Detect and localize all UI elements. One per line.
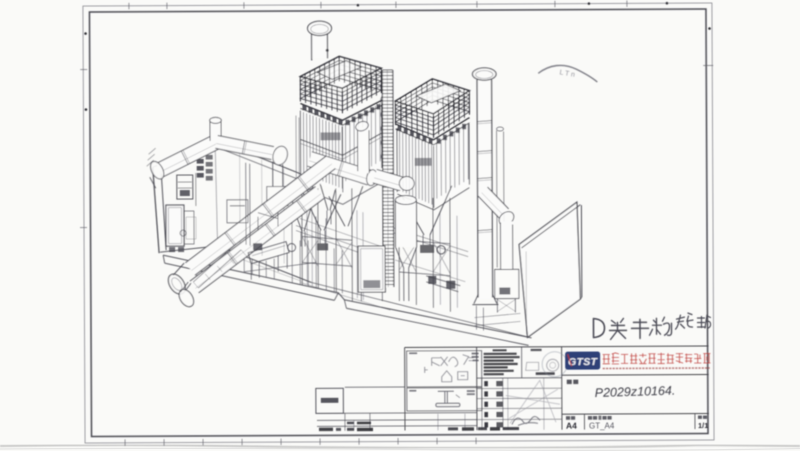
svg-text:GT_A4: GT_A4 [589, 421, 615, 430]
svg-text:GTST: GTST [568, 356, 599, 368]
svg-text:1/1: 1/1 [698, 421, 708, 430]
svg-text:P2029z10164.: P2029z10164. [594, 384, 675, 400]
svg-text:A4: A4 [566, 421, 577, 431]
